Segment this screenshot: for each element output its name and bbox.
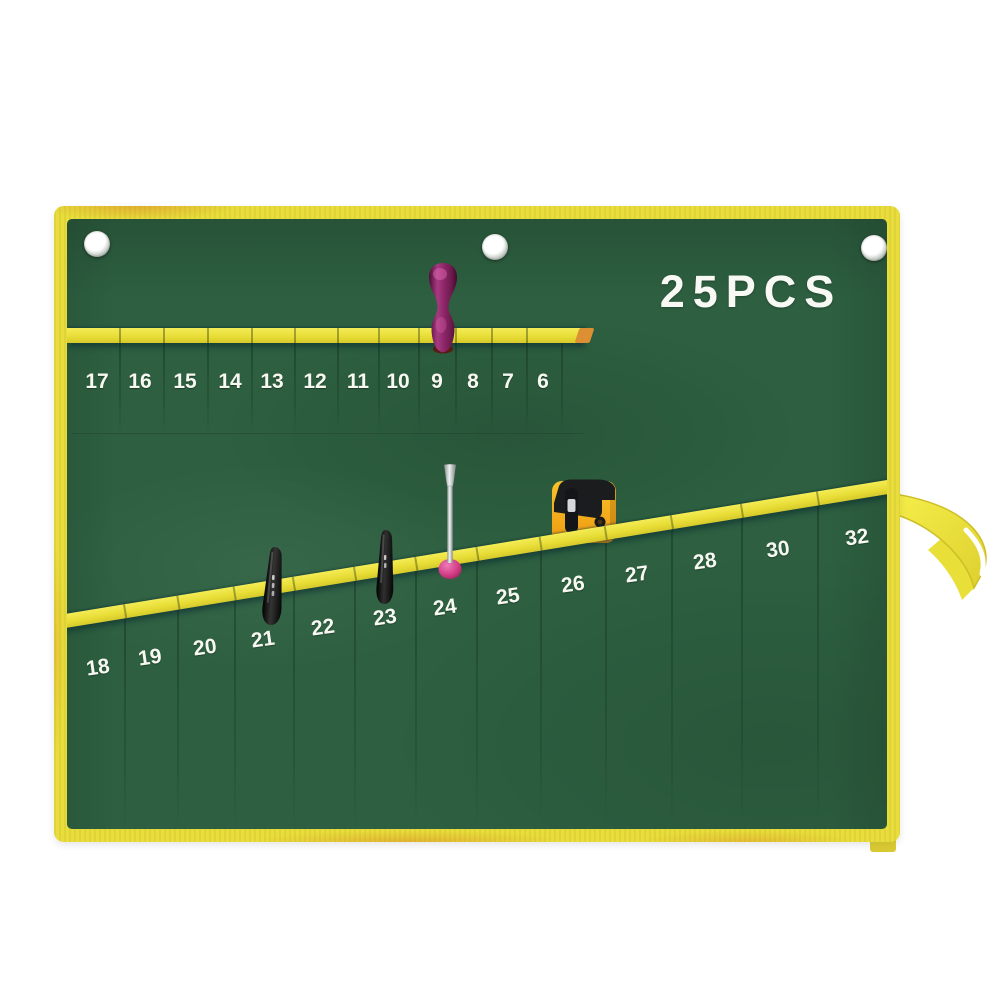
pocket-stitch-line xyxy=(234,600,236,829)
pocket-stitch-line xyxy=(540,551,542,829)
band-stitch xyxy=(233,586,237,600)
pocket-number: 22 xyxy=(310,614,336,641)
pocket-stitch-line xyxy=(741,518,743,829)
pocket-stitch-line xyxy=(294,343,296,433)
pocket-number: 16 xyxy=(128,370,151,394)
wooden-handle-screwdriver xyxy=(424,262,462,354)
pocket-number: 32 xyxy=(844,524,870,551)
band-stitch xyxy=(378,328,380,343)
band-stitch xyxy=(604,526,608,540)
pocket-number: 23 xyxy=(372,604,398,631)
pocket-hem-line xyxy=(71,433,583,434)
pocket-stitch-line xyxy=(251,343,253,433)
canvas-panel: 25PCS 17161514131211109876 1819202122232… xyxy=(67,219,887,829)
pocket-number: 17 xyxy=(85,370,108,394)
band-stitch xyxy=(539,536,543,550)
pocket-stitch-line xyxy=(817,506,819,829)
band-stitch xyxy=(163,328,165,343)
band-stitch xyxy=(491,328,493,343)
pocket-number: 28 xyxy=(692,548,718,575)
pocket-stitch-line xyxy=(476,561,478,829)
pocket-number: 25 xyxy=(495,583,521,610)
pocket-stitch-line xyxy=(526,343,528,433)
black-mini-tool-right xyxy=(371,528,400,607)
slotted-screwdriver xyxy=(437,463,463,585)
pocket-number: 12 xyxy=(303,370,326,394)
pocket-stitch-line xyxy=(124,618,126,829)
black-mini-tool-left xyxy=(255,544,291,628)
band-stitch xyxy=(414,557,418,571)
piece-count-label: 25PCS xyxy=(623,266,879,318)
screwdriver-shaft xyxy=(447,485,452,563)
grommet-left xyxy=(84,231,110,257)
top-pocket-band xyxy=(67,328,587,343)
screwdriver-blade xyxy=(445,464,456,486)
pocket-number: 19 xyxy=(137,644,163,671)
pocket-number: 10 xyxy=(386,370,409,394)
pocket-number: 27 xyxy=(624,561,650,588)
band-stitch xyxy=(475,547,479,561)
pocket-stitch-line xyxy=(378,343,380,433)
knife-slider xyxy=(568,499,576,512)
band-stitch xyxy=(292,577,296,591)
pocket-stitch-line xyxy=(119,343,121,433)
pocket-stitch-line xyxy=(337,343,339,433)
tool-roll: 25PCS 17161514131211109876 1819202122232… xyxy=(54,206,900,842)
pocket-stitch-line xyxy=(491,343,493,433)
pocket-number: 7 xyxy=(502,370,514,394)
band-stitch xyxy=(353,567,357,581)
pocket-stitch-line xyxy=(177,610,179,829)
handle-highlight-mid xyxy=(436,317,447,333)
pocket-number: 6 xyxy=(537,370,549,394)
pocket-stitch-line xyxy=(418,343,420,433)
pocket-number: 30 xyxy=(765,536,791,563)
pocket-stitch-line xyxy=(605,540,607,829)
band-stitch xyxy=(816,491,820,505)
pocket-stitch-line xyxy=(354,581,356,829)
mini-tool-print xyxy=(272,583,275,588)
pocket-stitch-line xyxy=(293,591,295,829)
pocket-number: 26 xyxy=(560,571,586,598)
handle-highlight-top xyxy=(433,268,447,280)
band-stitch xyxy=(526,328,528,343)
pocket-number: 14 xyxy=(218,370,241,394)
pocket-stitch-line xyxy=(455,343,457,433)
pocket-number: 15 xyxy=(173,370,196,394)
band-stitch xyxy=(251,328,253,343)
pocket-stitch-line xyxy=(415,571,417,829)
band-stitch xyxy=(123,604,127,618)
pocket-stitch-line xyxy=(207,343,209,433)
pocket-stitch-line xyxy=(163,343,165,433)
pocket-number: 9 xyxy=(431,370,443,394)
band-stitch xyxy=(670,515,674,529)
band-stitch xyxy=(740,504,744,518)
product-photo: 25PCS 17161514131211109876 1819202122232… xyxy=(0,0,1001,1001)
band-stitch xyxy=(207,328,209,343)
pocket-stitch-line xyxy=(671,529,673,829)
band-stitch xyxy=(337,328,339,343)
mini-tool-print xyxy=(272,591,275,596)
mini-tool-print xyxy=(384,555,387,560)
knife-hole-center xyxy=(598,520,603,525)
pocket-number: 11 xyxy=(347,370,369,394)
band-stitch xyxy=(176,595,180,609)
grommet-right xyxy=(861,235,887,261)
pocket-number: 24 xyxy=(432,594,458,621)
grommet-center xyxy=(482,234,508,260)
pocket-stitch-line xyxy=(561,343,563,433)
mini-tool-print xyxy=(272,575,275,580)
band-stitch xyxy=(119,328,121,343)
mini-tool-print xyxy=(384,563,387,568)
pocket-number: 20 xyxy=(192,634,218,661)
band-stitch xyxy=(294,328,296,343)
band-stitch xyxy=(418,328,420,343)
pocket-number: 18 xyxy=(85,654,111,681)
pocket-number: 8 xyxy=(467,370,479,394)
pocket-number: 21 xyxy=(250,626,276,653)
pocket-number: 13 xyxy=(260,370,283,394)
